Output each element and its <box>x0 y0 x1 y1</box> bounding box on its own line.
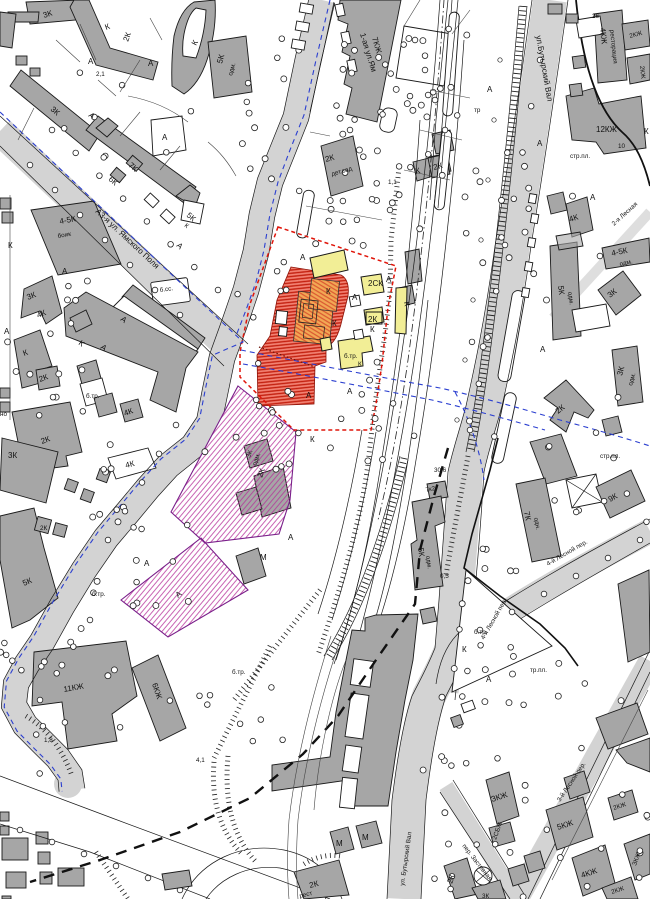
svg-text:М: М <box>336 839 343 848</box>
svg-text:б.тр.: б.тр. <box>344 352 358 360</box>
svg-text:2К: 2К <box>368 315 377 324</box>
svg-text:А: А <box>88 57 94 66</box>
svg-text:10: 10 <box>618 143 626 150</box>
svg-text:А: А <box>144 559 150 568</box>
svg-text:4,1: 4,1 <box>196 757 205 764</box>
svg-text:1,8: 1,8 <box>44 737 53 744</box>
svg-text:К: К <box>644 127 649 136</box>
svg-text:А: А <box>148 59 154 68</box>
svg-text:А: А <box>537 139 543 148</box>
svg-text:А: А <box>306 391 312 400</box>
svg-text:1,1: 1,1 <box>388 179 397 186</box>
svg-text:А: А <box>352 293 358 302</box>
svg-text:0,5: 0,5 <box>440 573 449 580</box>
svg-text:А: А <box>288 533 294 542</box>
svg-text:2КЖ: 2КЖ <box>638 65 646 79</box>
svg-text:К: К <box>8 241 13 250</box>
svg-text:30,6: 30,6 <box>434 467 447 474</box>
svg-text:3К: 3К <box>8 451 17 460</box>
svg-text:А: А <box>540 345 546 354</box>
svg-text:А: А <box>347 387 353 396</box>
svg-text:А: А <box>590 193 596 202</box>
svg-text:К: К <box>310 435 315 444</box>
svg-text:4КЖ: 4КЖ <box>598 27 609 45</box>
svg-text:тр: тр <box>474 107 481 114</box>
svg-text:2СК: 2СК <box>368 279 383 288</box>
svg-text:К: К <box>462 645 467 654</box>
svg-text:3К: 3К <box>482 893 490 899</box>
svg-text:2К: 2К <box>40 525 48 532</box>
svg-text:А: А <box>4 327 10 336</box>
svg-text:М: М <box>260 553 267 562</box>
svg-text:К: К <box>332 319 337 328</box>
svg-text:К: К <box>370 325 375 334</box>
svg-text:стр.пл.: стр.пл. <box>600 453 620 460</box>
svg-text:тр.пл.: тр.пл. <box>530 667 547 674</box>
svg-text:но: но <box>0 411 7 418</box>
svg-text:стр.пл.: стр.пл. <box>570 153 590 160</box>
svg-text:А: А <box>486 675 492 684</box>
svg-text:К: К <box>358 361 362 368</box>
svg-text:А: А <box>162 133 168 142</box>
svg-text:5К: 5К <box>556 285 566 296</box>
svg-text:б.тр.: б.тр. <box>474 628 488 636</box>
svg-text:К: К <box>326 287 331 296</box>
svg-text:А: А <box>62 267 68 276</box>
svg-text:б.тр.: б.тр. <box>86 392 100 400</box>
svg-text:б.тр.: б.тр. <box>232 668 246 676</box>
svg-text:А: А <box>300 253 306 262</box>
svg-text:б.тр.: б.тр. <box>92 590 106 598</box>
svg-text:А: А <box>487 85 493 94</box>
svg-text:М: М <box>362 833 369 842</box>
svg-text:А: А <box>386 275 392 284</box>
svg-text:12КЖ: 12КЖ <box>596 125 618 134</box>
svg-text:26: 26 <box>592 13 600 20</box>
svg-text:2,1: 2,1 <box>96 71 105 78</box>
